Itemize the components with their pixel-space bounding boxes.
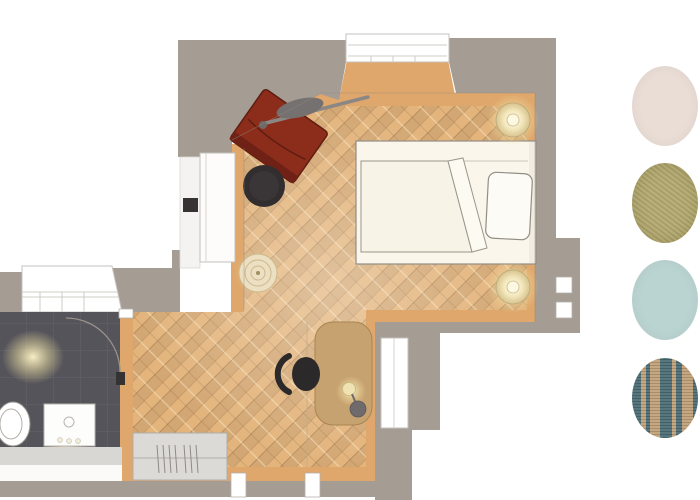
bathroom-lower-strip (0, 465, 122, 481)
wall-bottom-a (0, 481, 231, 497)
wardrobe-outer-panel (180, 157, 200, 268)
bathroom-ceiling-light (2, 330, 64, 384)
vanity-sink (44, 404, 95, 446)
office-chair-seat (292, 357, 320, 391)
palette-swatch-olive (632, 163, 698, 243)
floor-plan-page (0, 0, 700, 500)
bedroom-window (346, 34, 449, 62)
wall-bedroom-bottom-right (375, 322, 580, 333)
vanity-knob (58, 438, 63, 443)
bedside-lamp-top (487, 94, 539, 146)
palette-swatch-powder-blue (632, 260, 698, 340)
radiator (133, 433, 227, 480)
wall-bottom-c (320, 481, 375, 497)
wall-bathroom-top (112, 268, 180, 312)
vanity-knob (76, 439, 81, 444)
bathroom-door-stop (116, 372, 125, 385)
bed (356, 141, 536, 264)
balcony-door-threshold-right (305, 473, 320, 497)
toilet (0, 402, 30, 446)
wall-top-right (444, 38, 556, 93)
wardrobe-handle (183, 198, 198, 212)
desk-lamp-bulb (343, 383, 356, 396)
window-reveal (339, 60, 456, 100)
bathroom-door-threshold (119, 309, 133, 318)
vanity-knob (67, 439, 72, 444)
basket-center (256, 271, 260, 275)
desk-lamp-head (350, 401, 366, 417)
palette-swatch-teal-stripe (632, 358, 698, 438)
lamp-bulb (507, 114, 519, 126)
palette-swatch-blush (632, 66, 698, 146)
round-basket (234, 249, 282, 297)
wardrobe (180, 153, 235, 268)
wardrobe-body (200, 153, 235, 262)
shaft-niche-bottom (556, 302, 572, 318)
wall-bottom-b (246, 481, 305, 497)
lamp-bulb (507, 281, 519, 293)
pillow (485, 172, 532, 240)
floor-plan (0, 0, 700, 500)
shaft-niche-top (556, 277, 572, 293)
bathroom-window (22, 266, 122, 312)
wall-bathroom-left (0, 272, 22, 312)
toilet-bowl (0, 402, 30, 446)
bathroom-sill-strip (0, 447, 122, 465)
radiator-body (133, 433, 227, 480)
bedside-lamp-bottom (487, 261, 539, 313)
pouf-top (249, 171, 279, 201)
bathroom (0, 309, 133, 481)
balcony-door-threshold-left (231, 473, 246, 497)
pouf (243, 165, 285, 207)
